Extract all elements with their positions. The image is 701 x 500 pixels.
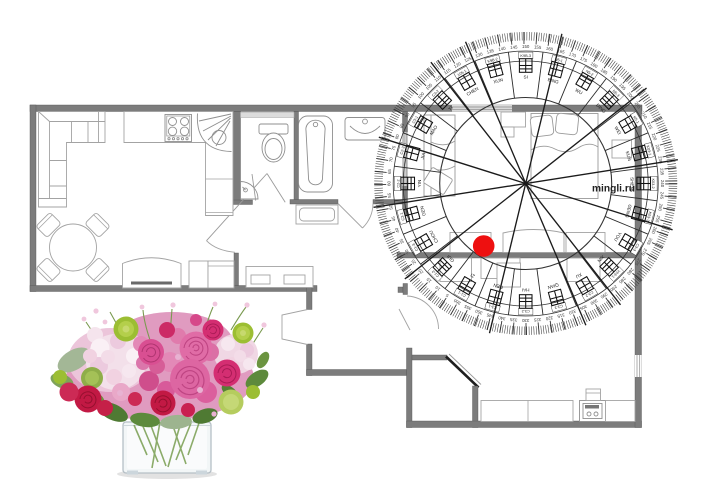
svg-text:CHEN: CHEN [466, 86, 480, 97]
svg-text:235: 235 [659, 168, 665, 176]
svg-text:160: 160 [545, 46, 554, 52]
svg-text:155: 155 [534, 44, 542, 50]
svg-text:330: 330 [521, 318, 529, 323]
svg-text:265: 265 [646, 237, 654, 246]
svg-text:WU: WU [574, 87, 583, 95]
svg-text:135: 135 [486, 48, 495, 55]
svg-text:BING: BING [547, 77, 560, 85]
svg-text:240: 240 [660, 180, 665, 188]
svg-text:HAI: HAI [522, 287, 530, 292]
svg-text:225: 225 [654, 144, 661, 153]
svg-text:170: 170 [568, 51, 577, 58]
svg-text:260: 260 [650, 226, 657, 235]
svg-text:K03-2: K03-2 [651, 178, 655, 188]
svg-text:YIN: YIN [417, 180, 422, 188]
svg-text:C3-2: C3-2 [522, 309, 530, 313]
svg-text:150: 150 [522, 44, 530, 49]
svg-text:C2-2: C2-2 [396, 179, 400, 187]
svg-text:335: 335 [509, 317, 517, 323]
svg-text:325: 325 [533, 317, 541, 323]
svg-text:245: 245 [659, 192, 665, 200]
svg-text:220: 220 [651, 132, 658, 141]
svg-text:250: 250 [657, 203, 663, 212]
svg-text:215: 215 [646, 121, 654, 130]
svg-text:255: 255 [654, 215, 661, 224]
svg-text:XUN: XUN [493, 77, 504, 84]
svg-text:175: 175 [579, 56, 588, 64]
svg-text:SI: SI [524, 75, 528, 80]
svg-text:140: 140 [498, 46, 507, 52]
svg-text:K9B-3: K9B-3 [520, 54, 531, 58]
svg-text:145: 145 [510, 44, 518, 50]
svg-text:60: 60 [386, 181, 391, 186]
svg-text:mingli.ru: mingli.ru [592, 183, 635, 194]
